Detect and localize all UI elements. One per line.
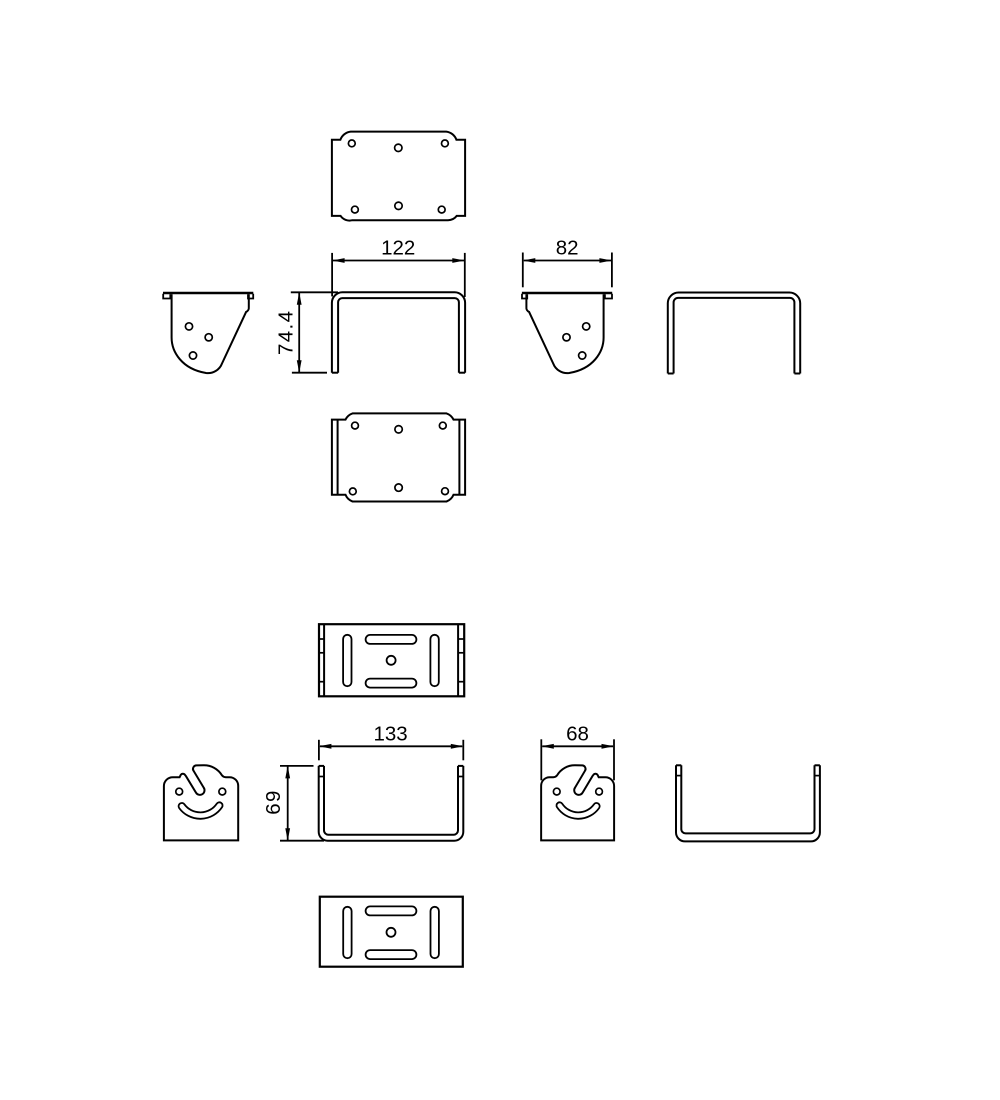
svg-text:68: 68 — [566, 723, 589, 746]
svg-text:69: 69 — [262, 789, 285, 815]
svg-text:74.4: 74.4 — [275, 310, 298, 356]
svg-text:133: 133 — [373, 723, 407, 746]
svg-text:122: 122 — [381, 236, 415, 259]
svg-text:82: 82 — [556, 236, 579, 259]
